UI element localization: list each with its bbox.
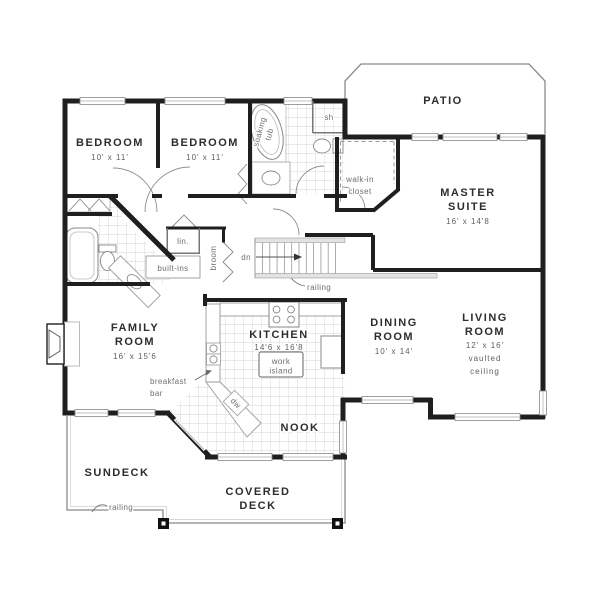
label-family-room-1: FAMILY (111, 322, 159, 334)
label-living-room-size: 12' x 16' (466, 341, 504, 350)
label-covered-deck-1: COVERED (226, 486, 291, 498)
window (500, 134, 527, 141)
label-master-suite-size: 16' x 14'8 (446, 217, 490, 226)
label-deck-railing: railing (109, 503, 133, 512)
label-living-room-note-1: vaulted (469, 354, 502, 363)
window (165, 98, 225, 105)
window (455, 414, 520, 421)
window (284, 98, 312, 105)
label-dining-room-1: DINING (370, 317, 418, 329)
label-family-room-size: 16' x 15'6 (113, 352, 157, 361)
window (283, 454, 333, 461)
vanity-sink-icon (262, 171, 280, 185)
bedroom1-closet (66, 198, 110, 213)
window (412, 134, 438, 141)
label-family-room-2: ROOM (115, 336, 155, 348)
label-bedroom1-size: 10' x 11' (91, 153, 129, 162)
label-covered-deck-2: DECK (239, 500, 276, 512)
floor-plan-page: BEDROOM 10' x 11' BEDROOM 10' x 11' MAST… (0, 0, 600, 600)
label-shower: sh (324, 113, 333, 122)
label-bedroom2-size: 10' x 11' (186, 153, 224, 162)
toilet-tank (99, 245, 116, 252)
label-living-room-1: LIVING (462, 312, 508, 324)
window (443, 134, 497, 141)
svg-text:broom: broom (209, 246, 218, 271)
label-dining-room-size: 10' x 14' (375, 347, 413, 356)
label-stair-railing: railing (307, 283, 331, 292)
label-nook: NOOK (281, 422, 320, 434)
label-walk-in-closet-1: walk-in (345, 175, 374, 184)
stair-railing (255, 274, 437, 279)
label-living-room-2: ROOM (465, 326, 505, 338)
label-walk-in-closet-2: closet (348, 187, 372, 196)
label-bedroom2: BEDROOM (171, 137, 239, 149)
window (218, 454, 272, 461)
label-patio: PATIO (423, 95, 462, 107)
stove-icon (269, 302, 299, 327)
fireplace-icon (47, 322, 80, 366)
label-linen: lin. (177, 237, 189, 246)
window (118, 410, 155, 417)
window (362, 397, 413, 404)
window (540, 391, 547, 415)
label-kitchen: KITCHEN (249, 329, 308, 341)
label-sundeck: SUNDECK (85, 467, 150, 479)
toilet-icon (314, 139, 331, 153)
label-bedroom1: BEDROOM (76, 137, 144, 149)
label-work-island-2: island (269, 367, 292, 376)
label-master-suite-2: SUITE (448, 201, 488, 213)
floor-plan-drawing: BEDROOM 10' x 11' BEDROOM 10' x 11' MAST… (0, 0, 600, 600)
label-work-island-1: work (271, 357, 291, 366)
label-master-suite-1: MASTER (440, 187, 495, 199)
label-breakfast-bar-1: breakfast (150, 377, 187, 386)
window (340, 421, 347, 453)
window (75, 410, 108, 417)
label-down: dn (241, 253, 251, 262)
fridge-icon (321, 336, 343, 368)
stair-top-rail (255, 238, 345, 243)
label-breakfast-bar-2: bar (150, 389, 163, 398)
window (80, 98, 125, 105)
label-living-room-note-2: ceiling (470, 367, 500, 376)
label-dining-room-2: ROOM (374, 331, 414, 343)
label-built-ins: built-ins (157, 264, 188, 273)
label-broom: broom (209, 246, 218, 271)
label-kitchen-size: 14'6 x 16'8 (254, 343, 303, 352)
